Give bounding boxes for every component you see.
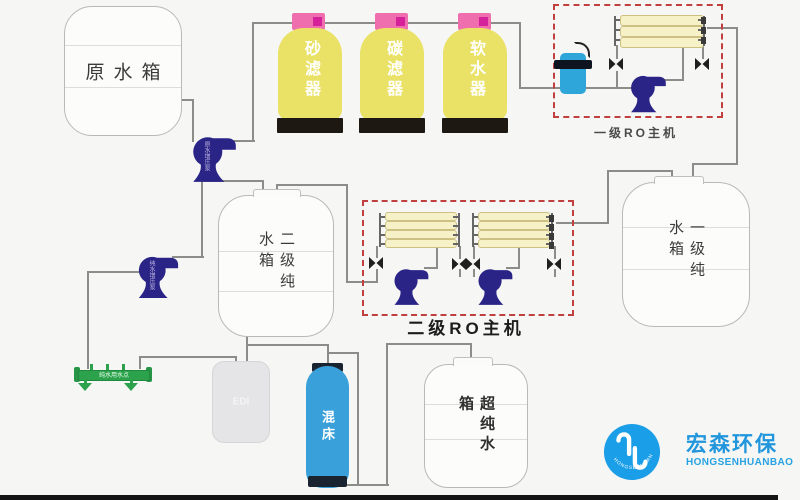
pipe-segment: [329, 352, 359, 354]
pipe-segment: [201, 180, 203, 256]
carbon-filter: 碳滤器: [360, 28, 424, 120]
membrane-port-tick: [453, 216, 459, 218]
tank-collar: [654, 176, 704, 184]
pure-water-pump-label: 纯水增压泵: [148, 260, 154, 294]
valve-icon: [452, 258, 466, 270]
mixed-bed-bottom-cap: [308, 476, 347, 487]
membrane-port-tick: [379, 216, 385, 218]
ro-stage1-label: 一级RO主机: [553, 124, 719, 141]
water-softener: 软水器: [443, 28, 507, 120]
membrane-port-tick: [614, 39, 620, 41]
filter-cap-valve: [396, 17, 405, 26]
pure-water-pump: [136, 250, 180, 300]
membrane-port-tick: [472, 234, 478, 236]
membrane-port-tick: [379, 234, 385, 236]
membrane-port-tick: [379, 243, 385, 245]
tank-collar: [253, 189, 301, 197]
membrane-port-connector: [701, 17, 706, 24]
membrane-port-connector: [549, 224, 554, 231]
pipe-segment: [346, 185, 348, 282]
pipe-segment: [519, 22, 521, 88]
manifold-bar: 纯水用水点: [78, 370, 150, 381]
manifold-label: 纯水用水点: [99, 373, 129, 379]
precision-filter-cap: [554, 60, 592, 69]
mixed-bed-label: 混床: [318, 410, 337, 444]
ro-membrane-tube: [620, 15, 704, 26]
pipe-segment: [246, 344, 329, 346]
softener-base: [442, 118, 508, 133]
membrane-port-tick: [614, 19, 620, 21]
membrane-port-tick: [472, 216, 478, 218]
pipe-segment: [87, 271, 142, 273]
valve-icon: [547, 258, 561, 270]
membrane-port-tick: [614, 29, 620, 31]
membrane-port-tick: [453, 243, 459, 245]
membrane-port-connector: [549, 215, 554, 222]
image-bottom-border: [0, 495, 778, 500]
membrane-end-bracket: [614, 16, 616, 46]
ro-membrane-tube: [385, 221, 457, 230]
pipe-segment: [607, 170, 609, 224]
mixed-bed-column: 混床: [306, 366, 349, 488]
ro2-high-pressure-pump-a: [392, 262, 430, 308]
company-name-cn: 宏森环保: [686, 428, 778, 458]
pipe-segment: [607, 170, 673, 172]
ro-membrane-tube: [478, 221, 550, 230]
valve-icon: [609, 58, 623, 70]
membrane-end-bracket: [458, 213, 460, 247]
ro-membrane-tube: [620, 26, 704, 37]
process-flow-diagram: 原水箱 二级纯水箱 一级纯水箱 超纯水箱 EDI 混床 砂滤器 碳滤器: [0, 0, 800, 500]
edi-tank-label: EDI: [233, 397, 250, 408]
ultra-pure-water-tank-label: 超纯水箱: [455, 396, 497, 457]
pipe-segment: [357, 352, 359, 485]
pipe-segment: [470, 343, 472, 358]
pipe-segment: [252, 22, 254, 142]
pipe-segment: [139, 356, 237, 358]
ultra-pure-water-tank: 超纯水箱: [424, 364, 528, 488]
carbon-filter-label: 碳滤器: [380, 40, 404, 100]
pipe-segment: [736, 27, 738, 164]
membrane-port-tick: [472, 225, 478, 227]
ro-membrane-tube: [385, 239, 457, 248]
first-stage-pure-water-tank: 一级纯水箱: [622, 182, 750, 327]
secondary-pure-water-tank-label: 二级纯水箱: [255, 231, 297, 301]
tank-collar: [453, 357, 493, 366]
sand-filter-base: [277, 118, 343, 133]
sand-filter: 砂滤器: [278, 28, 342, 120]
ro-membrane-tube: [478, 239, 550, 248]
pipe-segment: [276, 184, 348, 186]
membrane-port-tick: [453, 225, 459, 227]
pipe-segment: [386, 343, 388, 485]
membrane-port-connector: [549, 242, 554, 249]
pipe-segment: [692, 163, 738, 165]
raw-water-tank: 原水箱: [64, 6, 182, 136]
membrane-port-tick: [472, 243, 478, 245]
ro-membrane-tube: [385, 212, 457, 221]
pipe-segment: [386, 343, 472, 345]
pipe-segment: [246, 335, 248, 363]
company-logo-mark: HONGSENHUANBAO: [603, 423, 661, 481]
manifold-leg: [78, 383, 92, 391]
sand-filter-label: 砂滤器: [298, 40, 322, 100]
ro1-high-pressure-pump: [628, 70, 668, 114]
carbon-filter-base: [359, 118, 425, 133]
raw-water-tank-label: 原水箱: [76, 58, 169, 85]
membrane-port-tick: [379, 225, 385, 227]
membrane-end-bracket: [472, 213, 474, 247]
manifold-leg: [124, 383, 138, 391]
company-name-en: HONGSENHUANBAO: [686, 457, 793, 468]
valve-icon: [695, 58, 709, 70]
membrane-port-tick: [453, 234, 459, 236]
pipe-segment: [87, 271, 89, 369]
ro-stage2-label: 二级RO主机: [362, 314, 570, 339]
filter-cap-valve: [479, 17, 488, 26]
valve-icon: [369, 257, 383, 269]
ro-membrane-tube: [620, 37, 704, 48]
membrane-port-connector: [549, 233, 554, 240]
tank-seam: [65, 87, 181, 88]
water-softener-label: 软水器: [463, 40, 487, 100]
ro-membrane-tube: [478, 230, 550, 239]
secondary-pure-water-tank: 二级纯水箱: [218, 195, 334, 337]
raw-water-pump: [190, 130, 238, 184]
membrane-port-connector: [701, 37, 706, 44]
ro2-high-pressure-pump-b: [476, 262, 514, 308]
use-point-manifold: 纯水用水点: [70, 360, 156, 392]
filter-cap-valve: [313, 17, 322, 26]
membrane-port-connector: [701, 27, 706, 34]
ro-membrane-tube: [478, 212, 550, 221]
raw-water-pump-label: 原水增压泵: [203, 141, 209, 177]
first-stage-pure-water-tank-label: 一级纯水箱: [665, 219, 707, 291]
membrane-end-bracket: [379, 213, 381, 247]
tank-seam: [65, 45, 181, 46]
edi-tank: EDI: [212, 361, 270, 443]
ro-membrane-tube: [385, 230, 457, 239]
